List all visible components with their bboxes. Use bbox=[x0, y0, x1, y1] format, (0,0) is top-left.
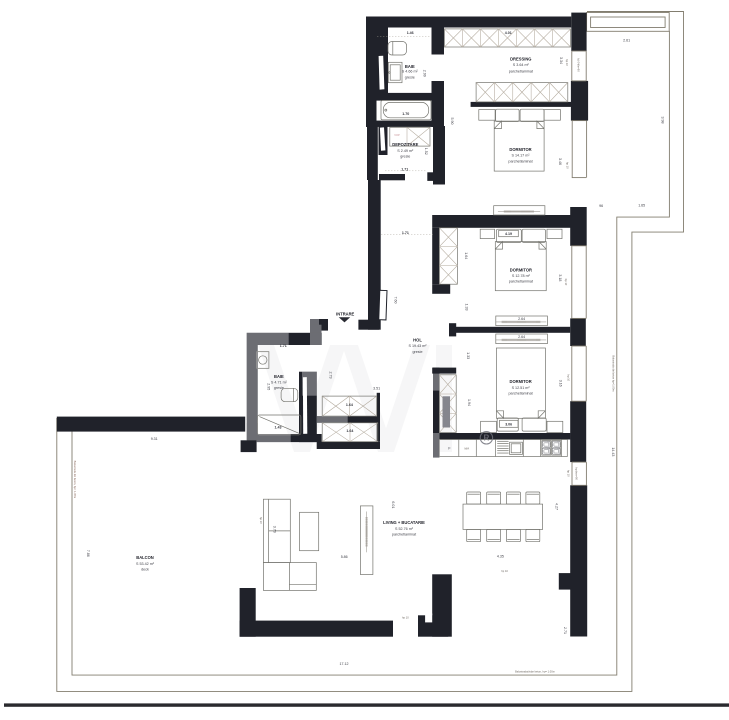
svg-text:Balustrada din beton hp=1.00m: Balustrada din beton hp=1.00m bbox=[612, 355, 616, 391]
svg-text:LIVING + BUCATARIE: LIVING + BUCATARIE bbox=[383, 520, 425, 525]
svg-text:S 4.66 m²: S 4.66 m² bbox=[402, 70, 419, 74]
svg-text:4.01: 4.01 bbox=[505, 31, 512, 35]
svg-text:DORMITOR: DORMITOR bbox=[509, 379, 531, 384]
svg-text:7.60: 7.60 bbox=[393, 297, 397, 304]
svg-text:hp 10: hp 10 bbox=[567, 470, 571, 477]
svg-text:1.46: 1.46 bbox=[407, 31, 414, 35]
svg-text:BAIE: BAIE bbox=[274, 374, 284, 379]
svg-text:3.18: 3.18 bbox=[558, 274, 562, 281]
svg-text:DORMITOR: DORMITOR bbox=[510, 267, 532, 272]
svg-text:VOP: VOP bbox=[394, 133, 400, 137]
svg-text:parchetlaminat: parchetlaminat bbox=[509, 392, 533, 396]
svg-text:2.73: 2.73 bbox=[328, 372, 332, 379]
svg-text:14.43: 14.43 bbox=[611, 447, 615, 456]
svg-text:BAIE: BAIE bbox=[405, 64, 415, 69]
svg-text:1.70: 1.70 bbox=[402, 112, 409, 116]
svg-text:parchetlaminat: parchetlaminat bbox=[392, 533, 416, 537]
svg-text:HOL: HOL bbox=[413, 338, 422, 343]
svg-text:17.12: 17.12 bbox=[340, 662, 349, 666]
svg-text:S 14.17 m²: S 14.17 m² bbox=[511, 154, 530, 158]
svg-text:hp 10: hp 10 bbox=[402, 615, 409, 619]
svg-text:1.71: 1.71 bbox=[280, 344, 287, 348]
svg-text:2.99: 2.99 bbox=[423, 70, 427, 77]
svg-text:DEPOZITARE: DEPOZITARE bbox=[392, 142, 418, 147]
svg-text:gresie: gresie bbox=[400, 155, 410, 159]
svg-text:S 52.76 m²: S 52.76 m² bbox=[395, 527, 414, 531]
svg-text:1.94: 1.94 bbox=[467, 399, 471, 406]
svg-text:1.33: 1.33 bbox=[466, 352, 470, 359]
svg-text:hp 10: hp 10 bbox=[501, 569, 508, 573]
svg-text:gresie: gresie bbox=[274, 386, 284, 390]
svg-text:gresie: gresie bbox=[412, 350, 422, 354]
svg-text:hp 10: hp 10 bbox=[259, 517, 263, 524]
svg-text:1.64: 1.64 bbox=[346, 429, 353, 433]
svg-text:parchetlaminat: parchetlaminat bbox=[508, 160, 532, 164]
svg-text:5.86: 5.86 bbox=[341, 555, 348, 559]
svg-text:parchetlaminat: parchetlaminat bbox=[509, 280, 533, 284]
svg-text:hp 10: hp 10 bbox=[564, 279, 568, 286]
svg-text:S 12.51 m²: S 12.51 m² bbox=[512, 386, 531, 390]
svg-text:INTRARE: INTRARE bbox=[336, 312, 354, 317]
svg-text:DORMITOR: DORMITOR bbox=[509, 147, 531, 152]
svg-text:1.65: 1.65 bbox=[638, 203, 645, 207]
svg-text:1.33: 1.33 bbox=[465, 304, 469, 311]
svg-text:3.70: 3.70 bbox=[273, 526, 277, 533]
svg-text:96: 96 bbox=[599, 204, 603, 208]
svg-text:1.71: 1.71 bbox=[402, 231, 409, 235]
svg-text:1.64: 1.64 bbox=[464, 252, 468, 259]
svg-text:2.95: 2.95 bbox=[266, 383, 270, 390]
svg-text:3.51: 3.51 bbox=[373, 386, 380, 390]
svg-text:hp btm=90: hp btm=90 bbox=[575, 468, 579, 481]
svg-text:hp 10: hp 10 bbox=[565, 59, 569, 66]
svg-text:2.71: 2.71 bbox=[563, 627, 567, 634]
svg-text:S 19.43 m²: S 19.43 m² bbox=[408, 344, 427, 348]
svg-text:1.52: 1.52 bbox=[424, 148, 428, 155]
svg-text:2.61: 2.61 bbox=[623, 39, 630, 43]
svg-text:2.64: 2.64 bbox=[518, 317, 525, 321]
svg-text:R: R bbox=[484, 434, 490, 443]
svg-text:S 12.78 m²: S 12.78 m² bbox=[512, 274, 531, 278]
svg-text:6.01: 6.01 bbox=[391, 501, 395, 508]
svg-text:9.31: 9.31 bbox=[151, 437, 158, 441]
svg-text:fcl 04/in=90: fcl 04/in=90 bbox=[577, 58, 581, 72]
svg-text:7.86: 7.86 bbox=[86, 550, 90, 557]
svg-text:DRESSING: DRESSING bbox=[510, 57, 531, 62]
svg-text:Balustrada/zidar beton, hp= 1.: Balustrada/zidar beton, hp= 1.00m bbox=[515, 669, 555, 673]
svg-text:4.35: 4.35 bbox=[497, 555, 504, 559]
svg-text:S 4.71 m²: S 4.71 m² bbox=[271, 381, 288, 385]
svg-text:4.27: 4.27 bbox=[555, 503, 559, 510]
svg-text:BALCON: BALCON bbox=[136, 555, 154, 560]
svg-text:M/A: M/A bbox=[464, 446, 469, 450]
svg-text:3.98: 3.98 bbox=[660, 117, 664, 124]
svg-text:1.71: 1.71 bbox=[401, 167, 408, 171]
svg-text:5.90: 5.90 bbox=[450, 118, 454, 125]
svg-text:parchetlaminat: parchetlaminat bbox=[509, 69, 533, 73]
svg-text:3.46: 3.46 bbox=[558, 158, 562, 165]
svg-text:hp 10: hp 10 bbox=[566, 162, 570, 169]
svg-text:S 3.64 m²: S 3.64 m² bbox=[513, 63, 530, 67]
svg-text:3.16: 3.16 bbox=[558, 380, 562, 387]
svg-text:2.64: 2.64 bbox=[518, 335, 525, 339]
svg-text:hp 10: hp 10 bbox=[567, 375, 571, 382]
svg-text:S 53.42 m²: S 53.42 m² bbox=[136, 562, 155, 566]
svg-text:gresie: gresie bbox=[405, 76, 415, 80]
svg-text:1.43: 1.43 bbox=[275, 425, 282, 429]
svg-text:3.06: 3.06 bbox=[505, 423, 512, 427]
svg-text:S 2.49 m²: S 2.49 m² bbox=[397, 149, 414, 153]
svg-text:deck: deck bbox=[141, 567, 149, 571]
svg-text:1.64: 1.64 bbox=[346, 403, 353, 407]
svg-text:Balustrada din beton, hp= 1.00: Balustrada din beton, hp= 1.00m bbox=[73, 461, 77, 499]
svg-text:3.34: 3.34 bbox=[559, 57, 563, 64]
svg-text:4.19: 4.19 bbox=[505, 232, 512, 236]
